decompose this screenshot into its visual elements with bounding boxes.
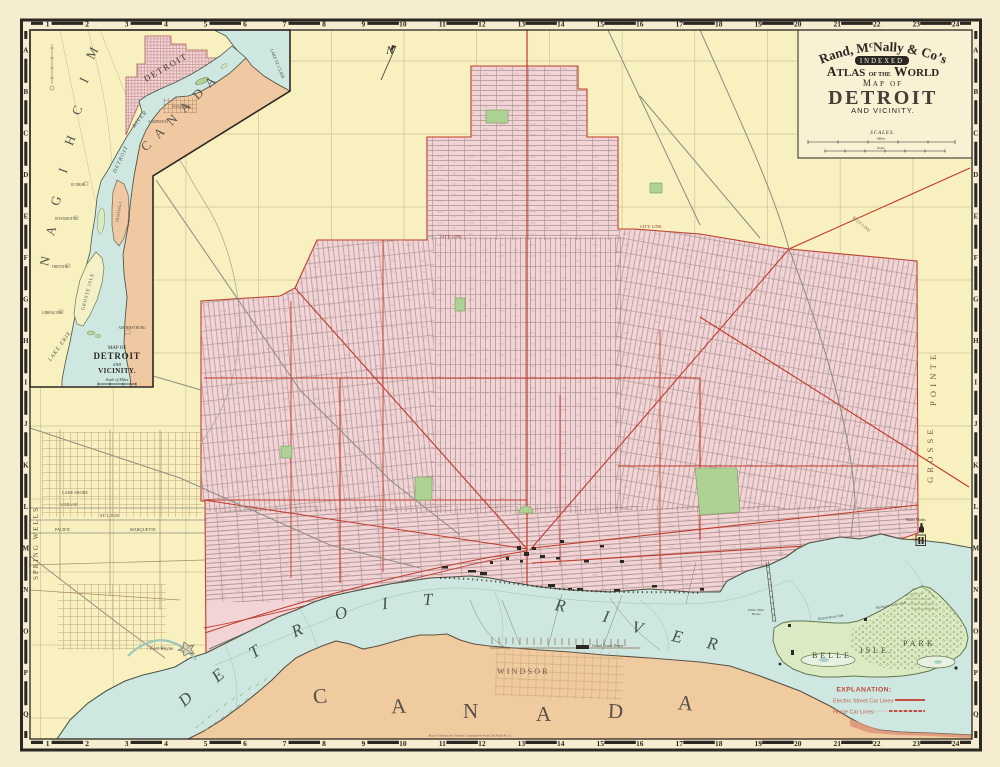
svg-text:N: N [385, 43, 395, 57]
svg-text:C: C [312, 683, 328, 708]
svg-text:12: 12 [478, 739, 486, 748]
svg-text:O: O [973, 628, 979, 636]
svg-text:16: 16 [636, 739, 644, 748]
svg-text:Miles: Miles [877, 137, 886, 141]
svg-text:SPRING WELLS: SPRING WELLS [32, 506, 40, 580]
svg-text:P: P [974, 669, 979, 677]
svg-text:5: 5 [204, 739, 208, 748]
svg-text:14: 14 [557, 20, 565, 29]
svg-text:GROSSE: GROSSE [925, 425, 935, 483]
svg-text:Q: Q [973, 711, 979, 719]
svg-text:21: 21 [833, 20, 841, 29]
svg-text:BELLE: BELLE [812, 651, 852, 660]
svg-text:11: 11 [439, 739, 446, 748]
svg-text:3: 3 [125, 20, 129, 29]
svg-text:1: 1 [46, 20, 50, 29]
svg-text:13: 13 [518, 739, 526, 748]
svg-text:8: 8 [322, 20, 326, 29]
svg-text:ECORSE: ECORSE [71, 183, 86, 187]
svg-text:4: 4 [164, 739, 168, 748]
svg-text:H: H [23, 337, 29, 345]
svg-text:VICINITY.: VICINITY. [98, 367, 136, 375]
svg-text:L: L [23, 503, 28, 511]
svg-text:G: G [23, 296, 29, 304]
svg-text:K: K [973, 462, 979, 470]
svg-text:2: 2 [85, 739, 89, 748]
svg-text:19: 19 [754, 20, 762, 29]
svg-text:Grand Trunk Depot: Grand Trunk Depot [592, 643, 624, 648]
svg-text:1: 1 [46, 739, 50, 748]
svg-text:9: 9 [362, 20, 366, 29]
svg-text:I: I [24, 379, 27, 387]
svg-text:D: D [23, 171, 28, 179]
svg-text:17: 17 [676, 739, 684, 748]
svg-text:PARK: PARK [903, 639, 936, 648]
svg-text:P: P [24, 669, 29, 677]
svg-text:MARQUETTE: MARQUETTE [130, 527, 156, 532]
svg-text:PACIFIC: PACIFIC [55, 527, 71, 532]
svg-text:CITY LINE: CITY LINE [640, 224, 662, 229]
svg-text:13: 13 [518, 20, 526, 29]
svg-text:A: A [390, 694, 407, 719]
svg-text:N: N [23, 586, 28, 594]
svg-text:2: 2 [85, 20, 89, 29]
svg-text:15: 15 [597, 20, 605, 29]
svg-text:D: D [607, 699, 623, 724]
svg-text:14: 14 [557, 739, 565, 748]
svg-text:N: N [973, 586, 978, 594]
svg-text:H: H [973, 337, 979, 345]
svg-text:A: A [973, 47, 978, 55]
svg-text:E: E [23, 213, 28, 221]
svg-text:11: 11 [439, 20, 446, 29]
svg-text:B: B [23, 88, 28, 96]
svg-text:23: 23 [912, 20, 920, 29]
svg-text:F: F [24, 254, 28, 262]
svg-text:I: I [974, 379, 977, 387]
svg-text:CITY LINE: CITY LINE [440, 234, 462, 239]
svg-text:ISLE.: ISLE. [860, 646, 894, 655]
svg-text:AND VICINITY.: AND VICINITY. [851, 106, 915, 115]
svg-text:20: 20 [794, 20, 802, 29]
svg-text:Scale of Miles: Scale of Miles [106, 377, 129, 382]
svg-text:5: 5 [204, 20, 208, 29]
svg-text:Rods: Rods [877, 146, 885, 150]
svg-text:7: 7 [283, 739, 287, 748]
svg-text:G: G [973, 296, 979, 304]
svg-text:A: A [536, 702, 552, 726]
svg-text:M: M [22, 545, 29, 553]
svg-text:House: House [752, 612, 761, 616]
svg-text:10: 10 [399, 739, 407, 748]
svg-text:24: 24 [952, 20, 960, 29]
svg-text:21: 21 [833, 739, 841, 748]
svg-text:C: C [23, 130, 28, 138]
svg-text:15: 15 [597, 739, 605, 748]
svg-text:O: O [23, 628, 29, 636]
svg-text:L: L [973, 503, 978, 511]
svg-text:EXPLANATION:: EXPLANATION: [836, 687, 891, 694]
svg-text:10: 10 [399, 20, 407, 29]
svg-text:F: F [974, 254, 978, 262]
svg-text:AMHERSTBURG: AMHERSTBURG [118, 326, 146, 330]
svg-text:D: D [973, 171, 978, 179]
svg-text:16: 16 [636, 20, 644, 29]
svg-text:3: 3 [125, 739, 129, 748]
svg-text:Q: Q [23, 711, 29, 719]
svg-text:C: C [973, 130, 978, 138]
svg-text:SCALES.: SCALES. [870, 131, 895, 136]
svg-text:J: J [974, 420, 978, 428]
svg-text:20: 20 [794, 739, 802, 748]
svg-text:17: 17 [676, 20, 684, 29]
svg-text:19: 19 [754, 739, 762, 748]
svg-text:K: K [23, 462, 29, 470]
svg-text:Fort Wayne: Fort Wayne [149, 647, 174, 652]
svg-text:Electric Street Car Lines: Electric Street Car Lines [833, 699, 894, 705]
svg-text:A: A [677, 690, 695, 715]
svg-text:POINTE: POINTE [928, 351, 938, 406]
svg-text:4: 4 [164, 20, 168, 29]
svg-text:22: 22 [873, 20, 881, 29]
svg-text:18: 18 [715, 739, 723, 748]
svg-text:23: 23 [912, 739, 920, 748]
svg-text:DETROIT: DETROIT [93, 351, 140, 361]
svg-text:18: 18 [715, 20, 723, 29]
svg-text:A: A [23, 47, 28, 55]
svg-text:Water Works: Water Works [906, 518, 926, 522]
svg-text:B: B [973, 88, 978, 96]
svg-text:12: 12 [478, 20, 486, 29]
svg-text:N: N [463, 699, 478, 723]
svg-text:8: 8 [322, 739, 326, 748]
svg-text:7: 7 [283, 20, 287, 29]
svg-text:6: 6 [243, 739, 247, 748]
svg-text:6: 6 [243, 20, 247, 29]
svg-text:M: M [972, 545, 979, 553]
svg-text:WINDSOR: WINDSOR [497, 667, 550, 676]
svg-text:9: 9 [362, 739, 366, 748]
svg-text:Horse Car Lines.: Horse Car Lines. [833, 710, 875, 716]
svg-text:J: J [24, 420, 28, 428]
svg-text:24: 24 [952, 739, 960, 748]
svg-text:E: E [973, 213, 978, 221]
svg-text:22: 22 [873, 739, 881, 748]
